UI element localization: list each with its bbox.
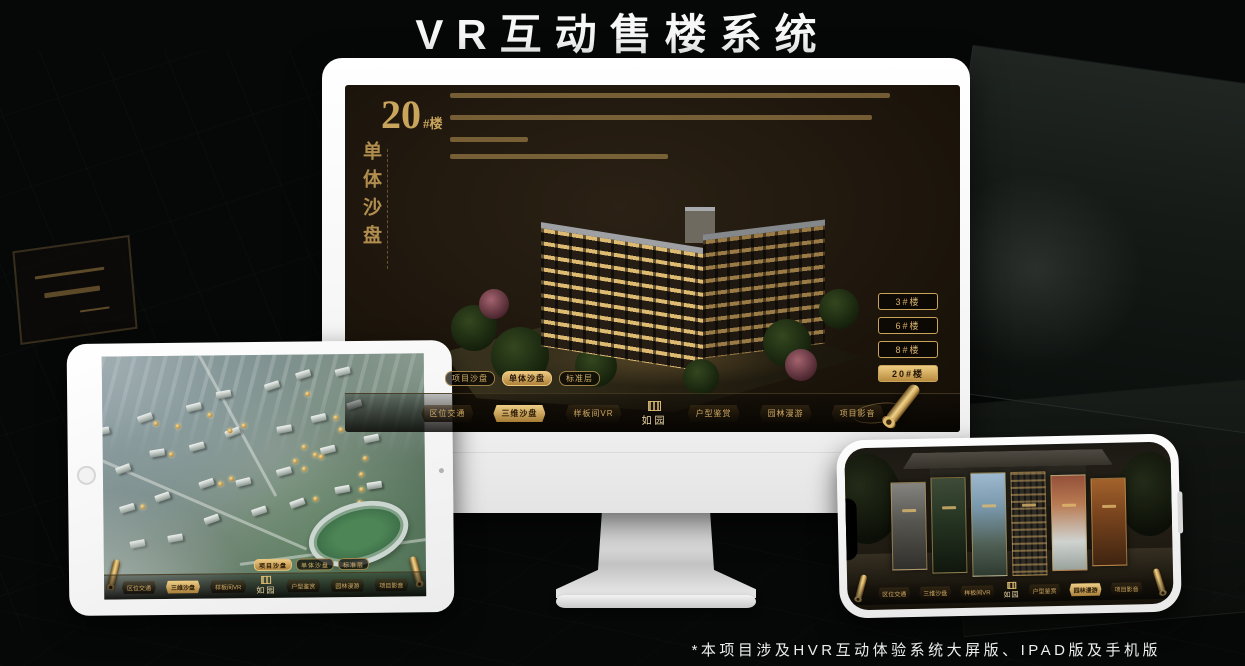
gallery-panel-4[interactable] — [1010, 471, 1047, 576]
nav-item-modelroom-vr[interactable]: 样板间VR — [210, 580, 246, 593]
building-number-badge[interactable] — [319, 454, 324, 459]
nav-item-project-video[interactable]: 项目影音 — [374, 578, 408, 591]
logo-seal-icon — [648, 401, 661, 411]
building-number-badge[interactable] — [359, 487, 364, 492]
gallery-panel-2[interactable] — [930, 477, 967, 574]
building-number-badge[interactable] — [153, 421, 158, 426]
tree — [819, 289, 859, 329]
building-number: 20 — [381, 92, 421, 137]
logo-seal-icon — [1007, 582, 1016, 589]
description-paragraph — [450, 93, 930, 176]
aerial-building — [334, 367, 350, 377]
pink-tree — [785, 349, 817, 381]
building-number-badge[interactable] — [228, 429, 233, 434]
building-subtitle: 单体沙盘 — [357, 141, 384, 301]
gallery-panel-1[interactable] — [891, 482, 928, 571]
building-number-badge[interactable] — [175, 424, 180, 429]
tab-project-sandtable[interactable]: 项目沙盘 — [254, 559, 292, 571]
building-button-8[interactable]: 8#楼 — [878, 341, 938, 358]
tablet-device: 项目沙盘 单体沙盘 标准层 区位交通 三维沙盘 样板间VR 如园 户型鉴赏 园林… — [67, 340, 455, 616]
nav-item-modelroom-vr[interactable]: 样板间VR — [960, 585, 995, 599]
building-button-3[interactable]: 3#楼 — [878, 293, 938, 310]
panel-caption — [1062, 504, 1076, 507]
panel-caption — [942, 506, 956, 509]
nav-item-floorplan[interactable]: 户型鉴赏 — [286, 579, 320, 592]
brand-logo: 如园 — [256, 576, 276, 596]
mode-tabs: 项目沙盘 单体沙盘 标准层 — [445, 371, 600, 386]
tablet-mode-tabs: 项目沙盘 单体沙盘 标准层 — [254, 558, 369, 571]
building-unit: #楼 — [423, 116, 443, 131]
panel-caption — [902, 509, 916, 512]
nav-item-location-traffic[interactable]: 区位交通 — [878, 587, 910, 601]
tablet-screen: 项目沙盘 单体沙盘 标准层 区位交通 三维沙盘 样板间VR 如园 户型鉴赏 园林… — [102, 353, 427, 599]
phone-device: 区位交通 三维沙盘 样板间VR 如园 户型鉴赏 园林漫游 项目影音 — [836, 433, 1182, 618]
building-number-badge[interactable] — [140, 504, 145, 509]
background-award-plaque — [12, 235, 137, 345]
building-number-badge[interactable] — [302, 445, 307, 450]
gallery-panel-6[interactable] — [1091, 478, 1128, 567]
building-number-badge[interactable] — [338, 427, 343, 432]
nav-item-floorplan[interactable]: 户型鉴赏 — [688, 405, 740, 422]
building-front-face — [541, 222, 703, 372]
brand-logo: 如园 — [1003, 582, 1019, 600]
gallery-panel-3[interactable] — [970, 472, 1007, 577]
tab-single-sandtable[interactable]: 单体沙盘 — [296, 558, 334, 570]
logo-seal-icon — [261, 576, 271, 584]
page-title: VR互动售楼系统 — [0, 1, 1245, 62]
tab-project-sandtable[interactable]: 项目沙盘 — [445, 371, 495, 386]
subtitle-divider — [387, 149, 388, 269]
phone-notch — [844, 498, 857, 560]
logo-text: 如园 — [642, 412, 668, 427]
panel-caption — [1102, 505, 1116, 508]
tablet-home-button[interactable] — [77, 466, 96, 485]
building-number-badge[interactable] — [302, 466, 307, 471]
panel-caption — [982, 504, 996, 507]
phone-side-button[interactable] — [1177, 491, 1183, 533]
promo-poster: VR互动售楼系统 20#楼 单体沙盘 — [0, 0, 1245, 666]
panel-caption — [1022, 503, 1036, 506]
nav-item-project-video[interactable]: 项目影音 — [1110, 582, 1142, 596]
building-number-badge[interactable] — [313, 453, 318, 458]
building-selector: 3#楼 6#楼 8#楼 20#楼 — [878, 293, 938, 382]
tablet-nav-bar: 区位交通 三维沙盘 样板间VR 如园 户型鉴赏 园林漫游 项目影音 — [104, 571, 426, 599]
aerial-building — [102, 427, 110, 437]
nav-item-3d-sandtable[interactable]: 三维沙盘 — [493, 405, 545, 422]
footnote-text: *本项目涉及HVR互动体验系统大屏版、IPAD版及手机版 — [692, 639, 1161, 660]
building-number-badge[interactable] — [293, 459, 298, 464]
phone-screen: 区位交通 三维沙盘 样板间VR 如园 户型鉴赏 园林漫游 项目影音 — [844, 442, 1173, 611]
tab-standard-floor[interactable]: 标准层 — [338, 558, 369, 570]
building-number-badge[interactable] — [229, 476, 234, 481]
nav-item-garden-roam[interactable]: 园林漫游 — [1069, 583, 1101, 597]
background-aerial-photo — [924, 45, 1245, 435]
nav-item-location-traffic[interactable]: 区位交通 — [122, 581, 156, 594]
gallery-panel-5[interactable] — [1050, 474, 1087, 571]
building-number-badge[interactable] — [208, 413, 213, 418]
logo-text: 如园 — [256, 585, 276, 596]
building-number-badge[interactable] — [305, 392, 310, 397]
building-number-badge[interactable] — [241, 423, 246, 428]
tablet-camera — [439, 468, 444, 473]
building-number-badge[interactable] — [333, 416, 338, 421]
nav-item-modelroom-vr[interactable]: 样板间VR — [565, 405, 621, 422]
nav-item-3d-sandtable[interactable]: 三维沙盘 — [919, 586, 951, 600]
nav-item-garden-roam[interactable]: 园林漫游 — [760, 405, 812, 422]
logo-text: 如园 — [1003, 590, 1019, 600]
aerial-building — [129, 540, 145, 550]
nav-item-3d-sandtable[interactable]: 三维沙盘 — [166, 580, 200, 593]
gallery-panels — [890, 465, 1127, 584]
tab-single-sandtable[interactable]: 单体沙盘 — [502, 371, 552, 386]
building-heading: 20#楼 — [381, 95, 443, 135]
brand-logo: 如园 — [642, 401, 668, 427]
building-number-badge[interactable] — [359, 472, 364, 477]
pink-tree — [479, 289, 509, 319]
tab-standard-floor[interactable]: 标准层 — [559, 371, 600, 386]
building-button-6[interactable]: 6#楼 — [878, 317, 938, 334]
nav-item-garden-roam[interactable]: 园林漫游 — [330, 578, 364, 591]
tree — [683, 359, 719, 395]
nav-item-location-traffic[interactable]: 区位交通 — [421, 405, 473, 422]
monitor-base — [556, 595, 756, 608]
nav-item-floorplan[interactable]: 户型鉴赏 — [1028, 583, 1060, 597]
building-button-20[interactable]: 20#楼 — [878, 365, 938, 382]
building-number-badge[interactable] — [313, 497, 318, 502]
building-number-badge[interactable] — [169, 452, 174, 457]
building-number-badge[interactable] — [218, 482, 223, 487]
building-number-badge[interactable] — [362, 455, 367, 460]
